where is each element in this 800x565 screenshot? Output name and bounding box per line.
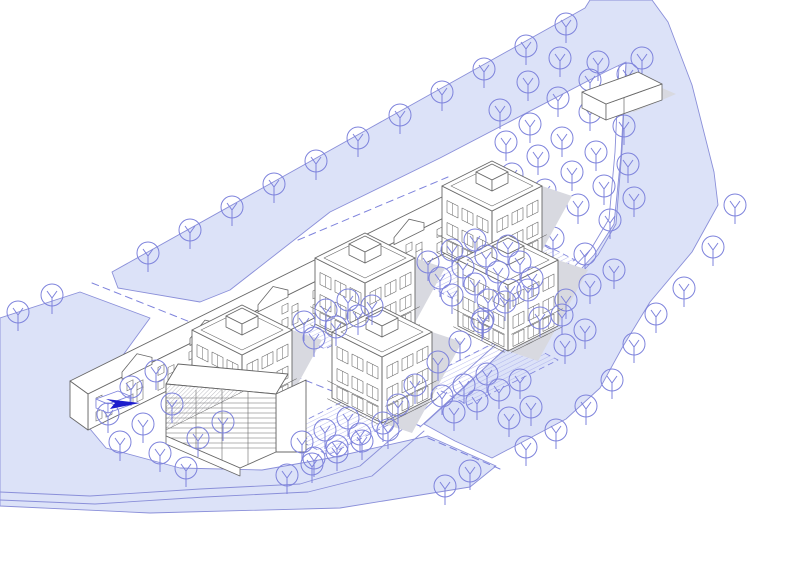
tree-symbol <box>724 194 746 224</box>
tree-trunk <box>557 134 567 157</box>
tree-symbol <box>551 127 573 157</box>
tree-symbol <box>527 145 549 175</box>
tree-trunk <box>651 310 661 333</box>
tree-trunk <box>533 152 543 175</box>
tree-symbol <box>673 277 695 307</box>
tree-trunk <box>708 243 718 266</box>
tree-symbol <box>495 131 517 161</box>
tree-trunk <box>599 182 609 205</box>
tree-trunk <box>521 443 531 466</box>
tree-symbol <box>519 113 541 143</box>
tree-symbol <box>702 236 724 266</box>
tree-trunk <box>573 201 583 224</box>
tree-trunk <box>629 340 639 363</box>
axonometric-drawing <box>0 0 800 565</box>
tree-trunk <box>551 426 561 449</box>
tree-trunk <box>607 376 617 399</box>
tree-trunk <box>679 284 689 307</box>
site-plan-canvas <box>0 0 800 565</box>
tree-trunk <box>138 420 148 443</box>
tree-symbol <box>132 413 154 443</box>
tree-trunk <box>501 138 511 161</box>
tree-symbol <box>585 141 607 171</box>
tree-trunk <box>567 168 577 191</box>
tree-trunk <box>525 120 535 143</box>
tree-symbol <box>645 303 667 333</box>
louvered-building <box>160 364 306 476</box>
tree-trunk <box>591 148 601 171</box>
tree-symbol <box>561 161 583 191</box>
tree-trunk <box>581 402 591 425</box>
tree-trunk <box>730 201 740 224</box>
